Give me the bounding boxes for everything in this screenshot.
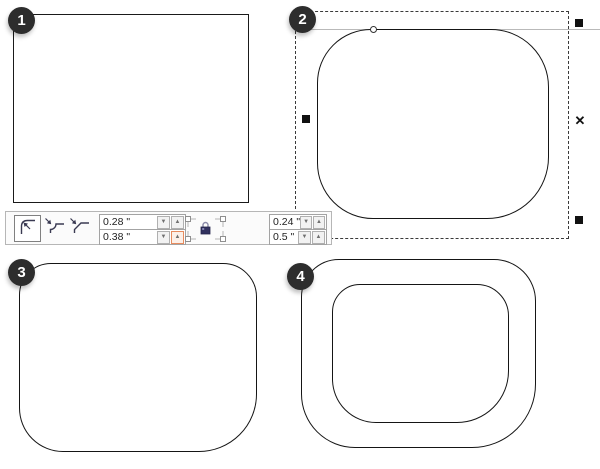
spinner-down-button[interactable]: ▼ [157, 216, 170, 229]
spinner-up-button[interactable]: ▲ [313, 216, 325, 229]
round-corner-icon [18, 217, 37, 241]
rectangle-original[interactable] [13, 14, 249, 203]
field-bottom-right-radius[interactable]: 0.5 " ▼ ▲ [269, 229, 327, 245]
spinner-up-button-highlighted[interactable]: ▲ [171, 231, 184, 244]
spinner-down-button[interactable]: ▼ [157, 231, 170, 244]
spinner-down-button[interactable]: ▼ [298, 231, 311, 244]
tutorial-canvas: 1 ✕ 2 [0, 0, 600, 469]
corner-node-handle[interactable] [370, 26, 377, 33]
field-bottom-left-radius[interactable]: 0.38 " ▼ ▲ [99, 229, 186, 245]
spinner-up-button[interactable]: ▲ [171, 216, 184, 229]
selection-handle-bottom-right[interactable] [575, 216, 583, 224]
left-corner-radius-group: 0.28 " ▼ ▲ 0.38 " ▼ ▲ [99, 214, 186, 245]
corner-bottom-right-indicator-icon [213, 229, 226, 247]
right-corner-radius-group: 0.24 " ▼ ▲ 0.5 " ▼ ▲ [269, 214, 327, 245]
rounded-rectangle-selected[interactable] [317, 29, 549, 219]
selection-handle-top-right[interactable] [575, 19, 583, 27]
spinner-down-button[interactable]: ▼ [300, 216, 312, 229]
top-left-radius-value[interactable]: 0.28 " [100, 216, 157, 228]
field-top-left-radius[interactable]: 0.28 " ▼ ▲ [99, 214, 186, 230]
selection-handle-middle-left[interactable] [302, 115, 310, 123]
scalloped-corner-icon [44, 217, 66, 240]
round-corner-button[interactable] [14, 215, 41, 242]
bottom-left-radius-value[interactable]: 0.38 " [100, 231, 157, 243]
rounded-rectangle-asymmetric[interactable] [19, 263, 257, 452]
step-badge-3: 3 [8, 259, 35, 286]
step-badge-1: 1 [8, 7, 35, 34]
top-right-radius-value[interactable]: 0.24 " [270, 216, 300, 228]
field-top-right-radius[interactable]: 0.24 " ▼ ▲ [269, 214, 327, 230]
scalloped-corner-button[interactable] [43, 218, 67, 238]
spinner-up-button[interactable]: ▲ [312, 231, 325, 244]
selection-x-marker[interactable]: ✕ [573, 114, 587, 128]
chamfered-corner-button[interactable] [68, 218, 92, 238]
step-badge-2: 2 [289, 6, 316, 33]
step-badge-4: 4 [287, 263, 314, 290]
bottom-right-radius-value[interactable]: 0.5 " [270, 231, 298, 243]
lock-corners-icon[interactable] [200, 221, 211, 240]
corner-bottom-left-indicator-icon [185, 229, 198, 247]
chamfered-corner-icon [69, 217, 91, 240]
rounded-rectangle-inner-contour[interactable] [332, 284, 509, 423]
corner-options-toolbar: 0.28 " ▼ ▲ 0.38 " ▼ ▲ [5, 211, 332, 245]
